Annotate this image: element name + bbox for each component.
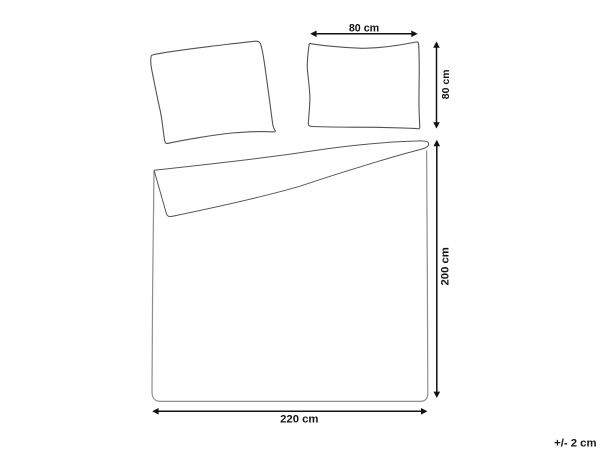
svg-text:200 cm: 200 cm bbox=[440, 247, 452, 285]
svg-text:80 cm: 80 cm bbox=[349, 22, 379, 34]
svg-text:80 cm: 80 cm bbox=[440, 69, 452, 99]
svg-text:220 cm: 220 cm bbox=[280, 414, 318, 426]
svg-text:+/- 2 cm: +/- 2 cm bbox=[554, 438, 596, 450]
